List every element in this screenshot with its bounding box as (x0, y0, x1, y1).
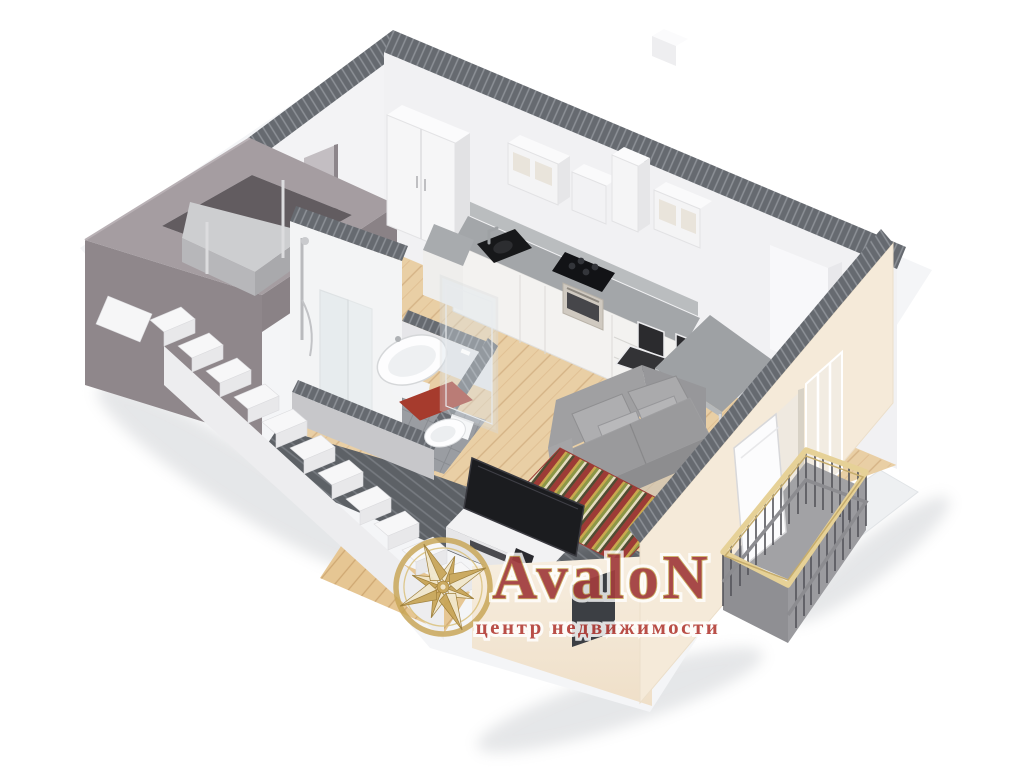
logo: AvaloN AvaloN центр недвижимости центр н… (381, 525, 720, 649)
basin-faucet (395, 336, 401, 342)
logo-title: AvaloN (492, 544, 711, 612)
bathroom-glass-door (441, 276, 497, 432)
floorplan-render: AvaloN AvaloN центр недвижимости центр н… (0, 0, 1024, 778)
shower-glass (320, 290, 348, 408)
logo-subtitle: центр недвижимости (476, 615, 721, 639)
vent-box (652, 29, 688, 66)
shower-head (301, 237, 309, 245)
cooker-hood (612, 147, 650, 232)
floorplan-canvas: AvaloN AvaloN центр недвижимости центр н… (0, 0, 1024, 778)
